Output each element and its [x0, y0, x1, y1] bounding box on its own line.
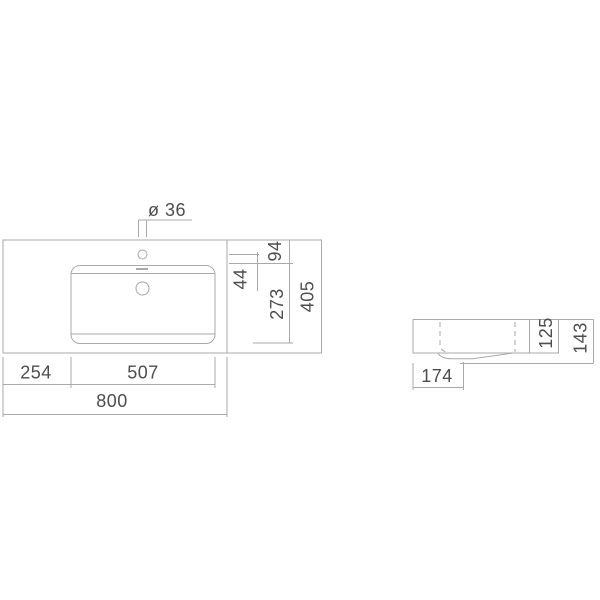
dim-label-125: 125 — [536, 317, 556, 349]
plan-faucet-hole — [138, 250, 147, 259]
dimension-labels: ø 36 94 44 273 405 254 507 800 174 125 1… — [20, 200, 590, 411]
dim-label-507: 507 — [127, 363, 159, 383]
dim-label-254: 254 — [20, 363, 52, 383]
technical-drawing-canvas: ø 36 94 44 273 405 254 507 800 174 125 1… — [0, 0, 600, 600]
side-bowl-hidden-left — [440, 322, 449, 353]
side-bowl-underside — [438, 353, 513, 359]
dim-label-405: 405 — [298, 281, 318, 313]
side-outline — [413, 320, 530, 354]
dim-label-44: 44 — [231, 268, 251, 289]
plan-outline — [3, 240, 227, 353]
dim-label-faucet-diameter: ø 36 — [148, 200, 186, 220]
drawing-lines — [3, 220, 594, 417]
dim-label-273: 273 — [267, 288, 287, 320]
plan-bowl-outline — [71, 266, 215, 344]
dim-faucet-diameter — [139, 220, 193, 237]
side-view — [413, 320, 530, 359]
dim-label-174: 174 — [421, 366, 453, 386]
dim-label-94: 94 — [265, 240, 285, 261]
plan-drain-hole — [136, 282, 149, 295]
plan-view — [3, 240, 227, 353]
dim-label-143: 143 — [571, 322, 591, 354]
dim-label-800: 800 — [96, 391, 128, 411]
